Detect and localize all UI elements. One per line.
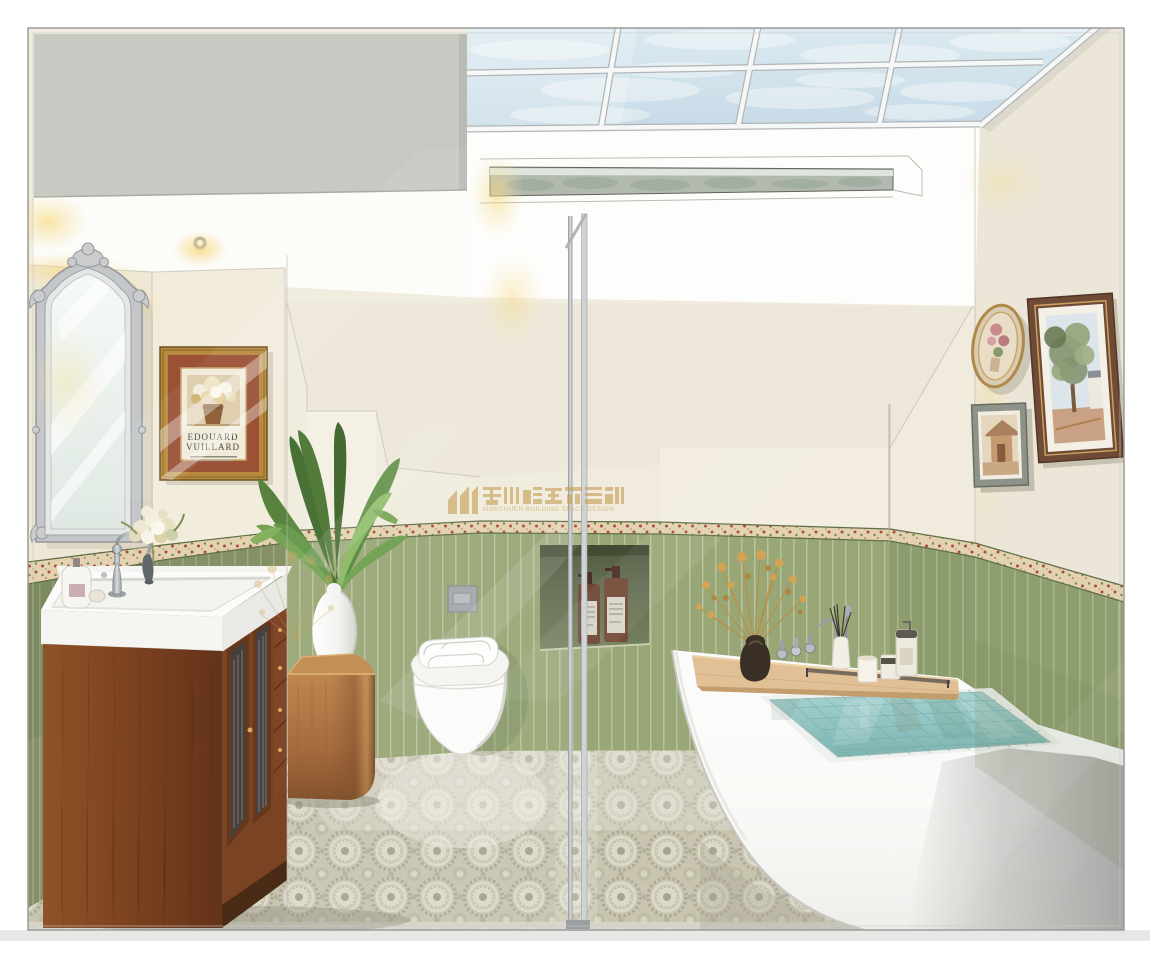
svg-text:MOKCHUEN BUILDING SPACE DESIGN: MOKCHUEN BUILDING SPACE DESIGN: [483, 506, 614, 513]
